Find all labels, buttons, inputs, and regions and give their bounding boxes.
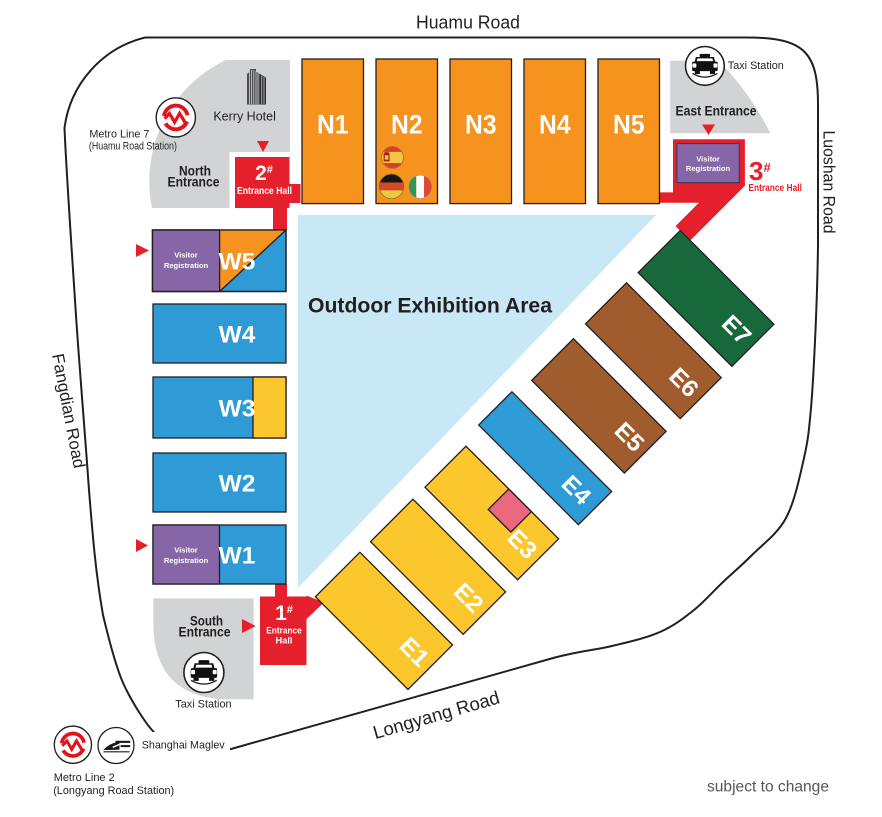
svg-text:N5: N5 bbox=[613, 110, 645, 140]
svg-text:Taxi Station: Taxi Station bbox=[175, 698, 231, 710]
svg-text:Registration: Registration bbox=[164, 556, 209, 565]
svg-text:Visitor: Visitor bbox=[174, 546, 198, 555]
svg-text:Longyang Road: Longyang Road bbox=[371, 687, 502, 743]
svg-text:Taxi Station: Taxi Station bbox=[728, 60, 784, 72]
svg-text:Visitor: Visitor bbox=[696, 155, 720, 164]
svg-text:Entrance: Entrance bbox=[179, 623, 231, 639]
svg-text:Luoshan Road: Luoshan Road bbox=[820, 131, 839, 234]
svg-text:Shanghai Maglev: Shanghai Maglev bbox=[142, 739, 225, 751]
svg-text:Kerry Hotel: Kerry Hotel bbox=[213, 110, 276, 124]
svg-text:Hall: Hall bbox=[276, 636, 293, 647]
svg-text:(Longyang Road Station): (Longyang Road Station) bbox=[53, 785, 174, 797]
svg-text:Entrance: Entrance bbox=[168, 174, 220, 190]
svg-text:Metro Line 2: Metro Line 2 bbox=[54, 772, 115, 784]
svg-text:N4: N4 bbox=[539, 110, 571, 140]
svg-text:Metro Line 7: Metro Line 7 bbox=[89, 129, 149, 141]
svg-text:Huamu Road: Huamu Road bbox=[416, 13, 520, 33]
svg-text:Entrance Hall: Entrance Hall bbox=[748, 182, 802, 194]
svg-text:W5: W5 bbox=[219, 249, 256, 276]
svg-text:East Entrance: East Entrance bbox=[676, 102, 757, 118]
svg-text:Outdoor Exhibition Area: Outdoor Exhibition Area bbox=[308, 295, 552, 318]
svg-text:subject to change: subject to change bbox=[707, 779, 829, 796]
svg-text:N2: N2 bbox=[391, 110, 423, 140]
svg-text:(Huamu Road Station): (Huamu Road Station) bbox=[89, 141, 177, 153]
svg-text:Visitor: Visitor bbox=[174, 251, 198, 260]
svg-text:N1: N1 bbox=[317, 110, 349, 140]
svg-text:Registration: Registration bbox=[686, 164, 731, 173]
svg-text:W4: W4 bbox=[219, 322, 256, 349]
svg-text:N3: N3 bbox=[465, 110, 497, 140]
svg-text:W2: W2 bbox=[219, 471, 256, 498]
svg-text:W1: W1 bbox=[219, 543, 256, 570]
svg-text:W3: W3 bbox=[219, 396, 256, 423]
svg-text:Registration: Registration bbox=[164, 261, 209, 270]
svg-text:Entrance Hall: Entrance Hall bbox=[237, 186, 292, 197]
